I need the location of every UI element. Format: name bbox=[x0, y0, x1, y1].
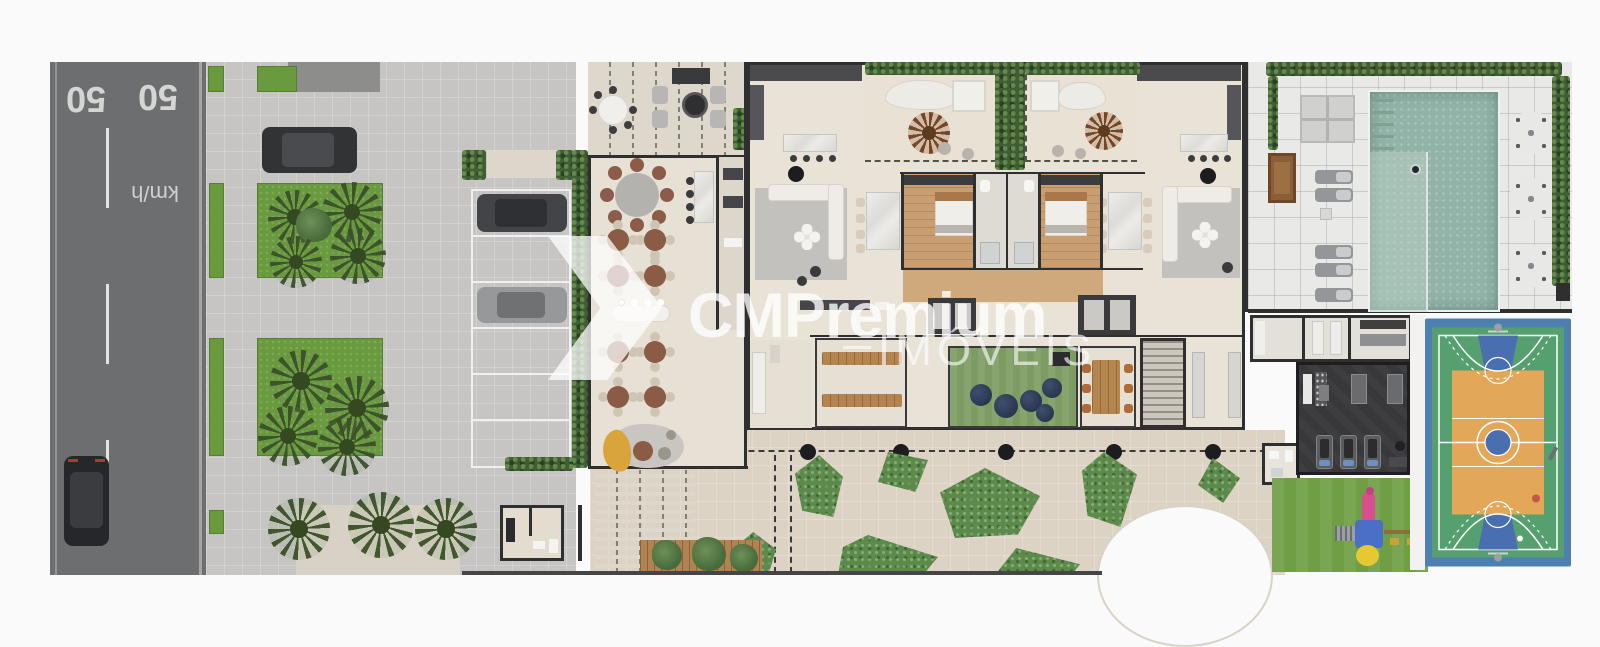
bed-throw bbox=[935, 225, 973, 233]
swimming-pool bbox=[1368, 90, 1500, 312]
pool-swim-lane bbox=[1370, 152, 1426, 312]
curved-outdoor-sofa bbox=[1058, 82, 1106, 110]
treadmill bbox=[1340, 435, 1357, 469]
coffee-table bbox=[633, 441, 653, 461]
cafe-table bbox=[644, 341, 666, 363]
umbrella-pole bbox=[1528, 130, 1533, 135]
shrub bbox=[652, 540, 682, 570]
toilet bbox=[533, 541, 545, 549]
car-roof bbox=[282, 133, 334, 167]
pool-umbrella bbox=[1510, 178, 1552, 220]
cafe-table bbox=[644, 386, 666, 408]
toilet bbox=[980, 180, 990, 192]
plaza-dashed-line-vertical bbox=[790, 455, 792, 573]
dining-table bbox=[1108, 192, 1142, 250]
palm-tree bbox=[348, 492, 414, 558]
pouf bbox=[810, 266, 821, 277]
play-platform bbox=[1355, 520, 1383, 548]
bathroom-core bbox=[975, 174, 1039, 268]
hedge-row bbox=[865, 62, 997, 75]
tree-bollard bbox=[800, 444, 816, 460]
kmh-marking: km/h bbox=[124, 176, 186, 206]
sauna-bench bbox=[1274, 162, 1290, 194]
car-taillight bbox=[68, 459, 78, 462]
speed-limit-marking: 50 bbox=[133, 76, 183, 118]
car-roof bbox=[497, 292, 545, 318]
bench bbox=[1312, 321, 1324, 355]
pool-umbrella bbox=[1510, 112, 1552, 154]
closet bbox=[1040, 175, 1102, 185]
toilet bbox=[1269, 451, 1279, 459]
cafe-table bbox=[644, 265, 666, 287]
curb-grass-strip bbox=[208, 66, 224, 92]
flower-coffee-table bbox=[794, 224, 820, 250]
daybed bbox=[1030, 80, 1060, 112]
bathroom-wall bbox=[1006, 174, 1008, 268]
island-stools bbox=[790, 155, 797, 162]
car-parked-suv bbox=[477, 194, 567, 232]
bench bbox=[1192, 352, 1205, 418]
refrigerator bbox=[1227, 85, 1241, 140]
site-floor-plan: 50 50 km/h bbox=[0, 0, 1600, 640]
treadmill bbox=[1316, 435, 1333, 469]
buffet-counter bbox=[694, 171, 714, 223]
sauna bbox=[1268, 153, 1296, 203]
slide-top-dot bbox=[1366, 487, 1374, 495]
hedge-row bbox=[572, 150, 588, 468]
palm-tree bbox=[330, 228, 386, 284]
bed bbox=[1045, 192, 1087, 236]
kitchen-island bbox=[1180, 134, 1228, 152]
bean-bag bbox=[1042, 378, 1062, 398]
closet bbox=[903, 175, 975, 185]
bean-bag bbox=[970, 384, 992, 406]
palm-tree bbox=[270, 236, 322, 288]
bed bbox=[935, 192, 973, 236]
speed-limit-text: 50 bbox=[138, 77, 178, 118]
curb-grass-strip bbox=[209, 510, 224, 534]
appliance bbox=[723, 196, 743, 208]
cafe-table bbox=[607, 386, 629, 408]
wood-bench bbox=[822, 394, 902, 407]
exercise-mat bbox=[1389, 457, 1407, 467]
subtitle-watermark: IMÓVEIS bbox=[878, 326, 1098, 376]
sink bbox=[1285, 450, 1293, 462]
pouf bbox=[666, 430, 676, 440]
headboard bbox=[935, 192, 973, 201]
partition-wall bbox=[1302, 318, 1305, 359]
parking-stall-line bbox=[471, 281, 571, 283]
guardhouse-room bbox=[500, 505, 564, 561]
umbrella-pole bbox=[1528, 263, 1533, 268]
dining-chairs bbox=[1143, 198, 1152, 207]
toilet bbox=[1024, 180, 1034, 192]
treadmill bbox=[1364, 435, 1381, 469]
sofa bbox=[828, 184, 844, 260]
playground-lawn bbox=[1272, 478, 1428, 572]
swing-seat bbox=[1390, 538, 1399, 545]
bean-bag bbox=[994, 394, 1018, 418]
car-taillight bbox=[95, 459, 105, 462]
communal-round-table bbox=[615, 173, 659, 217]
lounge-chair bbox=[710, 110, 726, 128]
dining-table bbox=[866, 192, 900, 250]
counter bbox=[1360, 320, 1406, 329]
pool-umbrella bbox=[1510, 245, 1552, 287]
shrub bbox=[692, 537, 726, 571]
headboard bbox=[1045, 192, 1087, 201]
pouf bbox=[1052, 145, 1064, 157]
island-stools bbox=[1188, 155, 1195, 162]
sports-court bbox=[1425, 318, 1571, 567]
curved-outdoor-sofa bbox=[885, 80, 957, 110]
refrigerator bbox=[750, 85, 764, 140]
bench bbox=[1228, 352, 1241, 418]
trellis-beam bbox=[1302, 118, 1353, 121]
side-table bbox=[1320, 208, 1332, 220]
sun-lounger bbox=[1315, 170, 1353, 184]
interior-wall bbox=[900, 172, 1145, 174]
bbq-counter bbox=[672, 68, 710, 84]
kmh-text: km/h bbox=[131, 181, 179, 206]
changing-room bbox=[1250, 315, 1412, 362]
pouf bbox=[1075, 148, 1086, 159]
cafe-table bbox=[644, 229, 666, 251]
gym-mat bbox=[1360, 334, 1406, 346]
meeting-chair bbox=[1082, 384, 1091, 393]
palm-tree bbox=[270, 350, 332, 412]
bench bbox=[1330, 321, 1342, 355]
bean-bag bbox=[1036, 404, 1054, 422]
hedge-row bbox=[505, 457, 573, 471]
gym-sign bbox=[1303, 374, 1312, 404]
gym-bench bbox=[1319, 385, 1329, 401]
shrub bbox=[730, 544, 758, 572]
speed-limit-text: 50 bbox=[66, 79, 106, 120]
sun-lounger bbox=[1315, 288, 1353, 302]
gym bbox=[1296, 362, 1410, 475]
clubhouse-wall bbox=[588, 157, 591, 468]
lounge-chair bbox=[652, 86, 668, 104]
outdoor-dining-table bbox=[598, 95, 628, 125]
pouf bbox=[658, 447, 671, 460]
flower-coffee-table bbox=[1192, 222, 1218, 248]
kitchen-island bbox=[783, 134, 837, 152]
watermark-dash bbox=[843, 346, 871, 349]
meeting-chair bbox=[1124, 404, 1133, 413]
slide-end bbox=[1356, 545, 1379, 566]
sun-lounger bbox=[1315, 245, 1353, 259]
palm-tree bbox=[268, 498, 330, 560]
palm-tree bbox=[415, 498, 477, 560]
shower bbox=[1271, 468, 1283, 477]
white-locker bbox=[752, 352, 766, 414]
dining-chairs bbox=[856, 198, 865, 207]
interior-wall bbox=[1100, 172, 1103, 270]
terrace-tree bbox=[1085, 112, 1123, 150]
deck-wall bbox=[1245, 62, 1248, 312]
palm-tree bbox=[258, 406, 318, 466]
pouf bbox=[1222, 262, 1233, 273]
fire-pit bbox=[682, 92, 708, 118]
curb-grass-strip bbox=[209, 338, 224, 456]
interior-wall bbox=[1038, 172, 1041, 270]
court-margin bbox=[1410, 315, 1425, 570]
lane-divider-line bbox=[1426, 152, 1428, 312]
hedge-row bbox=[1025, 62, 1140, 75]
parking-stall-line bbox=[471, 419, 571, 421]
lounge-chair bbox=[710, 86, 726, 104]
kitchen-counter bbox=[750, 65, 862, 81]
indoor-plant bbox=[788, 166, 804, 182]
shower bbox=[1014, 242, 1034, 264]
kettlebell bbox=[1395, 441, 1405, 451]
curb-grass-strip bbox=[209, 183, 224, 278]
partition-wall bbox=[1348, 318, 1351, 359]
tree-bollard bbox=[998, 444, 1014, 460]
interior-wall bbox=[973, 172, 976, 270]
pool-drain bbox=[1410, 164, 1421, 175]
palm-tree bbox=[318, 418, 376, 476]
pouf bbox=[938, 142, 951, 155]
play-ladder bbox=[1335, 526, 1355, 541]
hedge bbox=[462, 150, 486, 180]
hedge-row bbox=[1552, 76, 1570, 286]
road-curb-right bbox=[199, 62, 202, 575]
weight-machine bbox=[1387, 374, 1403, 404]
appliance bbox=[723, 168, 743, 180]
lounge-chair bbox=[652, 110, 668, 128]
shower bbox=[980, 242, 1000, 264]
road-curb-left bbox=[55, 62, 57, 575]
meeting-chair bbox=[1124, 384, 1133, 393]
car-roof bbox=[495, 199, 547, 227]
site-bottom-wall bbox=[462, 571, 1102, 575]
car-parked-sidewalk bbox=[262, 127, 357, 173]
indoor-plant bbox=[1200, 168, 1216, 184]
tree-bollard bbox=[1205, 444, 1221, 460]
sofa bbox=[1162, 186, 1178, 262]
umbrella-pole bbox=[1528, 196, 1533, 201]
parking-stall-line bbox=[471, 327, 571, 329]
meeting-chair bbox=[1124, 364, 1133, 373]
bed-throw bbox=[1045, 225, 1087, 233]
car-on-road bbox=[64, 456, 109, 546]
hedge-divider bbox=[995, 62, 1025, 170]
weight-machine bbox=[1351, 374, 1367, 404]
pouf bbox=[962, 148, 974, 160]
wall-stub bbox=[578, 505, 582, 561]
counter bbox=[1255, 321, 1265, 355]
desk bbox=[506, 518, 515, 542]
driveway-band bbox=[288, 62, 380, 92]
pool-steps bbox=[1372, 96, 1394, 150]
daybed bbox=[952, 80, 986, 112]
bar-stools bbox=[686, 177, 694, 185]
elevator-cab bbox=[1110, 300, 1130, 330]
kitchen-counter bbox=[1133, 65, 1241, 81]
speed-limit-marking: 50 bbox=[60, 78, 112, 120]
interior-wall bbox=[529, 508, 532, 536]
plaza-dashed-line-vertical bbox=[774, 455, 776, 573]
staircase bbox=[1140, 338, 1186, 428]
car-roof bbox=[70, 472, 103, 528]
interior-wall bbox=[901, 172, 904, 270]
sun-lounger bbox=[1315, 188, 1353, 202]
hedge-row bbox=[1268, 76, 1278, 150]
deck-wall-stub bbox=[1556, 283, 1570, 301]
meeting-chair bbox=[1082, 404, 1091, 413]
shade-trellis bbox=[1300, 95, 1355, 143]
car-parked-sedan bbox=[477, 287, 567, 323]
sun-lounger bbox=[1315, 263, 1353, 277]
locker-area bbox=[750, 340, 812, 428]
sink bbox=[549, 539, 558, 553]
curb-grass-strip bbox=[257, 66, 297, 92]
hedge-row bbox=[1266, 62, 1562, 76]
driveway-arc bbox=[1097, 505, 1273, 647]
sink bbox=[724, 238, 742, 247]
